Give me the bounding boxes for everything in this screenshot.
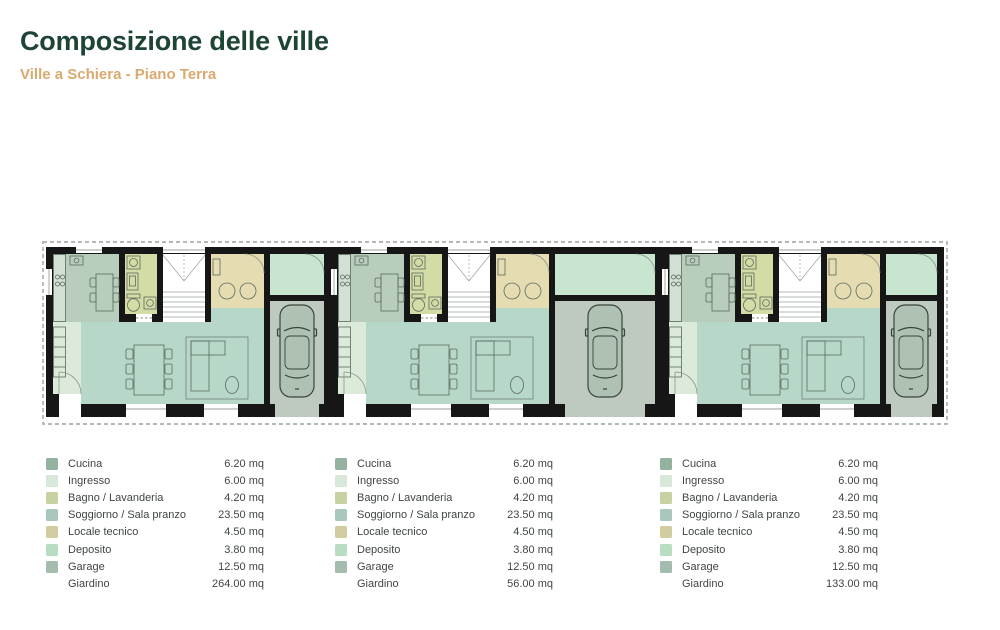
legend-row: Locale tecnico 4.50 mq [335, 524, 553, 541]
room-label: Soggiorno / Sala pranzo [357, 509, 507, 521]
legend-row: Deposito 3.80 mq [46, 541, 264, 558]
legend-row: Cucina 6.20 mq [660, 455, 878, 472]
room-color-swatch [335, 509, 347, 521]
house-unit-3 [662, 247, 880, 423]
room-color-swatch [335, 475, 347, 487]
room-label: Soggiorno / Sala pranzo [682, 509, 832, 521]
room-area-value: 12.50 mq [507, 561, 553, 573]
room-color-swatch [46, 544, 58, 556]
room-label: Giardino [68, 578, 212, 590]
legend-row: Giardino 56.00 mq [335, 575, 553, 592]
room-area-value: 12.50 mq [832, 561, 878, 573]
room-label: Locale tecnico [68, 526, 224, 538]
room-area-value: 23.50 mq [832, 509, 878, 521]
room-color-swatch [46, 475, 58, 487]
legend-row: Giardino 264.00 mq [46, 575, 264, 592]
room-area-value: 3.80 mq [224, 544, 264, 556]
room-area-value: 56.00 mq [507, 578, 553, 590]
car-icon [278, 305, 317, 397]
garage-unit-1 [270, 254, 324, 417]
room-area-value: 6.20 mq [224, 458, 264, 470]
room-color-swatch [335, 544, 347, 556]
room-area-value: 4.50 mq [513, 526, 553, 538]
room-color-swatch [660, 526, 672, 538]
room-color-swatch [660, 492, 672, 504]
room-label: Garage [682, 561, 832, 573]
room-color-swatch [335, 526, 347, 538]
room-color-swatch [660, 544, 672, 556]
room-label: Deposito [357, 544, 513, 556]
legend-row: Bagno / Lavanderia 4.20 mq [335, 489, 553, 506]
legend-row: Deposito 3.80 mq [335, 541, 553, 558]
legend-row: Soggiorno / Sala pranzo 23.50 mq [335, 507, 553, 524]
room-label: Giardino [357, 578, 507, 590]
room-label: Deposito [68, 544, 224, 556]
room-area-value: 133.00 mq [826, 578, 878, 590]
header: Composizione delle ville Ville a Schiera… [20, 26, 329, 83]
car-icon [586, 305, 625, 397]
room-color-swatch [46, 458, 58, 470]
floor-plan-svg [42, 241, 948, 425]
legend-row: Ingresso 6.00 mq [46, 472, 264, 489]
legend-row: Soggiorno / Sala pranzo 23.50 mq [46, 507, 264, 524]
room-label: Bagno / Lavanderia [357, 492, 513, 504]
legend-row: Bagno / Lavanderia 4.20 mq [660, 489, 878, 506]
car-icon [892, 305, 931, 397]
deposito-room [270, 254, 324, 295]
room-label: Cucina [68, 458, 224, 470]
room-color-swatch [660, 578, 672, 590]
room-label: Ingresso [357, 475, 513, 487]
room-area-value: 6.00 mq [838, 475, 878, 487]
room-label: Deposito [682, 544, 838, 556]
room-area-value: 6.00 mq [513, 475, 553, 487]
legend-row: Garage 12.50 mq [335, 558, 553, 575]
legend-row: Garage 12.50 mq [660, 558, 878, 575]
garage-door-opening [565, 404, 645, 417]
room-area-value: 4.50 mq [224, 526, 264, 538]
room-color-swatch [46, 509, 58, 521]
room-area-value: 23.50 mq [218, 509, 264, 521]
room-label: Ingresso [68, 475, 224, 487]
deposito-room [555, 254, 655, 295]
room-label: Locale tecnico [357, 526, 513, 538]
legend-row: Bagno / Lavanderia 4.20 mq [46, 489, 264, 506]
legend-row: Giardino 133.00 mq [660, 575, 878, 592]
house-unit-1 [46, 247, 264, 423]
room-area-value: 4.20 mq [224, 492, 264, 504]
room-label: Soggiorno / Sala pranzo [68, 509, 218, 521]
room-label: Giardino [682, 578, 826, 590]
room-label: Garage [357, 561, 507, 573]
room-area-value: 4.50 mq [838, 526, 878, 538]
page-subtitle: Ville a Schiera - Piano Terra [20, 66, 329, 83]
room-label: Bagno / Lavanderia [68, 492, 224, 504]
room-area-value: 4.20 mq [513, 492, 553, 504]
page-title: Composizione delle ville [20, 26, 329, 56]
room-color-swatch [335, 458, 347, 470]
room-area-value: 6.20 mq [513, 458, 553, 470]
legend-row: Locale tecnico 4.50 mq [660, 524, 878, 541]
room-label: Ingresso [682, 475, 838, 487]
legend-row: Soggiorno / Sala pranzo 23.50 mq [660, 507, 878, 524]
room-color-swatch [335, 578, 347, 590]
legend-row: Garage 12.50 mq [46, 558, 264, 575]
room-area-value: 3.80 mq [838, 544, 878, 556]
house-unit-2 [331, 247, 549, 423]
legend-villa-3: Cucina 6.20 mq Ingresso 6.00 mq Bagno / … [660, 455, 878, 593]
room-label: Cucina [682, 458, 838, 470]
garage-door-opening [891, 404, 932, 417]
room-label: Bagno / Lavanderia [682, 492, 838, 504]
room-area-value: 6.20 mq [838, 458, 878, 470]
room-color-swatch [660, 509, 672, 521]
legend-row: Deposito 3.80 mq [660, 541, 878, 558]
garage-unit-3 [886, 254, 937, 417]
garage-unit-2 [555, 254, 655, 417]
room-area-value: 23.50 mq [507, 509, 553, 521]
room-area-value: 4.20 mq [838, 492, 878, 504]
room-color-swatch [335, 561, 347, 573]
room-label: Locale tecnico [682, 526, 838, 538]
room-area-value: 3.80 mq [513, 544, 553, 556]
room-color-swatch [46, 578, 58, 590]
room-color-swatch [660, 458, 672, 470]
legend-row: Ingresso 6.00 mq [660, 472, 878, 489]
room-color-swatch [46, 561, 58, 573]
legend-row: Cucina 6.20 mq [46, 455, 264, 472]
garage-door-opening [275, 404, 319, 417]
legend-villa-1: Cucina 6.20 mq Ingresso 6.00 mq Bagno / … [46, 455, 264, 593]
room-area-value: 6.00 mq [224, 475, 264, 487]
room-area-value: 12.50 mq [218, 561, 264, 573]
room-color-swatch [46, 492, 58, 504]
legend-villa-2: Cucina 6.20 mq Ingresso 6.00 mq Bagno / … [335, 455, 553, 593]
room-area-value: 264.00 mq [212, 578, 264, 590]
legend-row: Cucina 6.20 mq [335, 455, 553, 472]
legend-row: Locale tecnico 4.50 mq [46, 524, 264, 541]
room-label: Garage [68, 561, 218, 573]
room-color-swatch [660, 475, 672, 487]
room-color-swatch [46, 526, 58, 538]
room-color-swatch [660, 561, 672, 573]
floor-plan [42, 241, 948, 425]
room-label: Cucina [357, 458, 513, 470]
room-color-swatch [335, 492, 347, 504]
legend-row: Ingresso 6.00 mq [335, 472, 553, 489]
deposito-room [886, 254, 937, 295]
